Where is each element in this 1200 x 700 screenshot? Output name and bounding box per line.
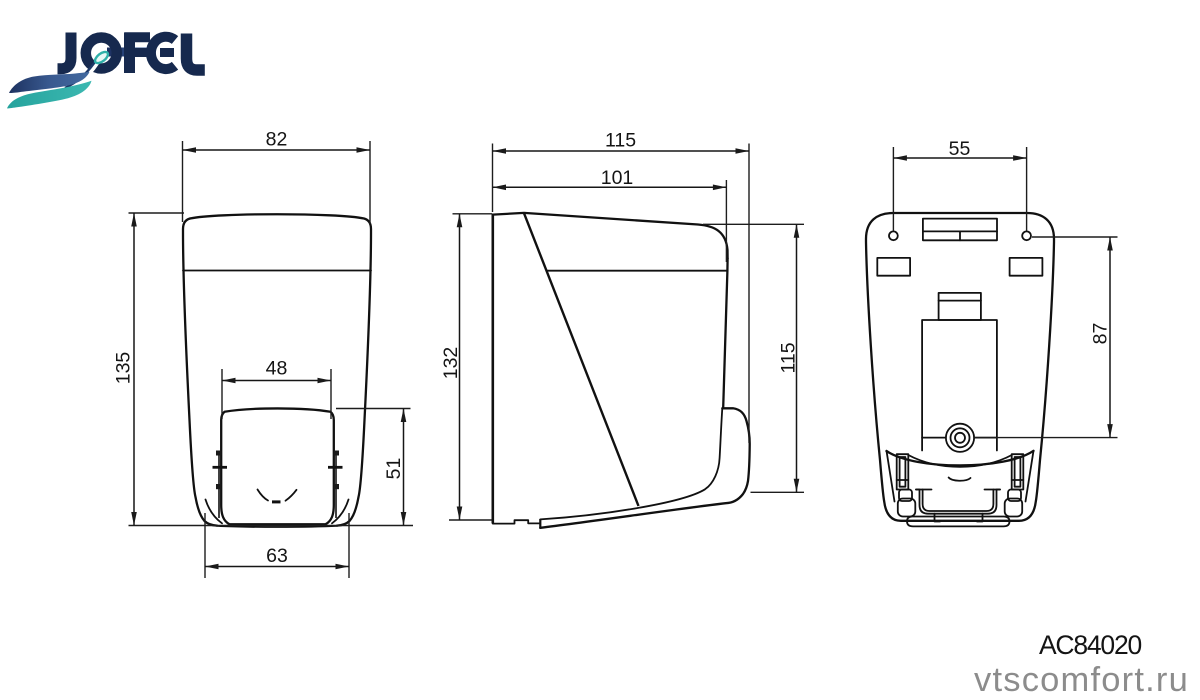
svg-text:101: 101 xyxy=(601,167,634,189)
svg-text:51: 51 xyxy=(383,458,405,480)
svg-text:132: 132 xyxy=(440,347,462,380)
svg-text:135: 135 xyxy=(113,352,135,385)
svg-text:55: 55 xyxy=(949,138,971,160)
svg-text:82: 82 xyxy=(266,128,288,150)
svg-text:87: 87 xyxy=(1090,323,1112,345)
svg-text:63: 63 xyxy=(266,545,288,567)
svg-text:115: 115 xyxy=(777,342,799,373)
svg-text:vtscomfort.ru: vtscomfort.ru xyxy=(974,661,1189,699)
svg-text:115: 115 xyxy=(605,129,636,151)
svg-text:48: 48 xyxy=(266,357,288,379)
svg-text:AC84020: AC84020 xyxy=(1039,630,1142,660)
